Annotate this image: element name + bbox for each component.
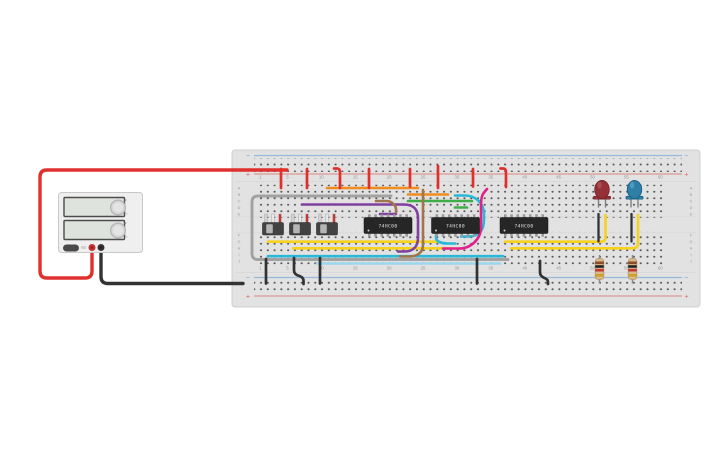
switch-body[interactable] (290, 223, 311, 236)
switch-leg (292, 214, 295, 223)
row-letter-H-right: H (690, 247, 693, 251)
row-letter-H-left: H (238, 247, 241, 251)
knob-face (113, 226, 123, 236)
column-label-25-bottom: 25 (421, 266, 426, 271)
resistor-band (595, 274, 604, 277)
ic-pin1-marker (435, 230, 437, 232)
row-letter-A-right: A (690, 187, 693, 191)
row-letter-G-left: G (238, 240, 241, 244)
bottom-rail-holes (254, 280, 682, 293)
column-label-50-bottom: 50 (590, 266, 595, 271)
row-letter-I-right: I (690, 253, 691, 257)
row-letter-G-right: G (690, 240, 693, 244)
row-letter-I-left: I (238, 253, 239, 257)
ic-74hc00-2[interactable]: 74HC00 (432, 214, 480, 236)
led-highlight (630, 182, 634, 189)
switch-leg (319, 214, 322, 223)
switch-leg (272, 214, 275, 223)
column-label-25-top: 25 (421, 174, 426, 179)
row-letter-J-left: J (238, 260, 240, 264)
column-label-60-top: 60 (658, 174, 663, 179)
column-label-10-top: 10 (319, 174, 324, 179)
circuit-svg: −−++−−++11551010151520202525303035354040… (0, 0, 725, 453)
ic-label: 74HC00 (446, 223, 465, 229)
switch-knob[interactable] (320, 224, 327, 233)
slide-switch-2[interactable] (290, 214, 311, 235)
led-highlight (598, 182, 602, 189)
row-letter-C-left: C (238, 200, 241, 204)
rail-minus-symbol: − (246, 275, 251, 281)
ic-pin1-marker (504, 230, 506, 232)
ic-pin1-marker (368, 230, 370, 232)
ic-label: 74HC00 (379, 223, 398, 229)
rail-plus-symbol: + (246, 172, 251, 178)
row-letter-D-left: D (238, 206, 241, 210)
psu-power-label (81, 246, 86, 249)
column-label-45-bottom: 45 (556, 266, 561, 271)
ic-74hc00-3[interactable]: 74HC00 (500, 214, 548, 236)
switch-leg (333, 214, 336, 223)
circuit-canvas: −−++−−++11551010151520202525303035354040… (0, 0, 725, 453)
column-label-30-bottom: 30 (455, 266, 460, 271)
column-label-45-top: 45 (556, 174, 561, 179)
power-supply[interactable] (59, 193, 143, 253)
resistor-1[interactable] (595, 255, 604, 284)
switch-leg (299, 214, 302, 223)
row-letter-B-right: B (690, 193, 693, 197)
column-label-15-bottom: 15 (353, 266, 358, 271)
column-label-30-top: 30 (455, 174, 460, 179)
column-label-35-top: 35 (488, 174, 493, 179)
switch-leg (326, 214, 329, 223)
column-label-40-top: 40 (522, 174, 527, 179)
resistor-band (628, 262, 637, 265)
slide-switch-3[interactable] (317, 214, 338, 235)
row-letter-E-right: E (690, 213, 693, 217)
resistor-2[interactable] (628, 255, 637, 284)
rail-plus-symbol: + (684, 294, 689, 300)
column-label-20-bottom: 20 (387, 266, 392, 271)
psu-negative-wire[interactable] (101, 249, 243, 284)
ic-label: 74HC00 (515, 223, 534, 229)
resistor-band (628, 274, 637, 277)
row-letter-E-left: E (238, 213, 241, 217)
column-label-40-bottom: 40 (522, 266, 527, 271)
switch-body[interactable] (317, 223, 338, 236)
led-dome[interactable] (627, 181, 641, 199)
rail-plus-symbol: + (246, 294, 251, 300)
resistor-band (595, 265, 604, 268)
switch-leg (279, 214, 282, 223)
column-label-20-top: 20 (387, 174, 392, 179)
knob-face (113, 203, 123, 213)
resistor-band (628, 265, 637, 268)
row-letter-J-right: J (690, 260, 692, 264)
column-label-55-top: 55 (624, 174, 629, 179)
resistor-band (595, 269, 604, 272)
rail-minus-symbol: − (684, 275, 689, 281)
resistor-band (595, 262, 604, 265)
switch-leg (306, 214, 309, 223)
ic-74hc00-1[interactable]: 74HC00 (364, 214, 412, 236)
switch-leg (265, 214, 268, 223)
switch-knob[interactable] (266, 224, 273, 233)
row-letter-D-right: D (690, 206, 693, 210)
top-rail-holes (254, 158, 682, 172)
switch-knob[interactable] (293, 224, 300, 233)
switch-body[interactable] (263, 223, 284, 236)
terminal-hole (100, 246, 103, 249)
row-letter-A-left: A (238, 187, 241, 191)
led-dome[interactable] (595, 181, 609, 199)
rail-plus-symbol: + (684, 172, 689, 178)
column-label-15-top: 15 (353, 174, 358, 179)
row-letter-B-left: B (238, 193, 241, 197)
column-label-35-bottom: 35 (488, 266, 493, 271)
terminal-hole (91, 246, 94, 249)
slide-switch-1[interactable] (263, 214, 284, 235)
rail-minus-symbol: − (684, 153, 689, 159)
resistor-band (628, 269, 637, 272)
row-letter-C-right: C (690, 200, 693, 204)
column-label-50-top: 50 (590, 174, 595, 179)
rail-minus-symbol: − (246, 153, 251, 159)
psu-power-button[interactable] (63, 245, 79, 252)
column-label-60-bottom: 60 (658, 266, 663, 271)
